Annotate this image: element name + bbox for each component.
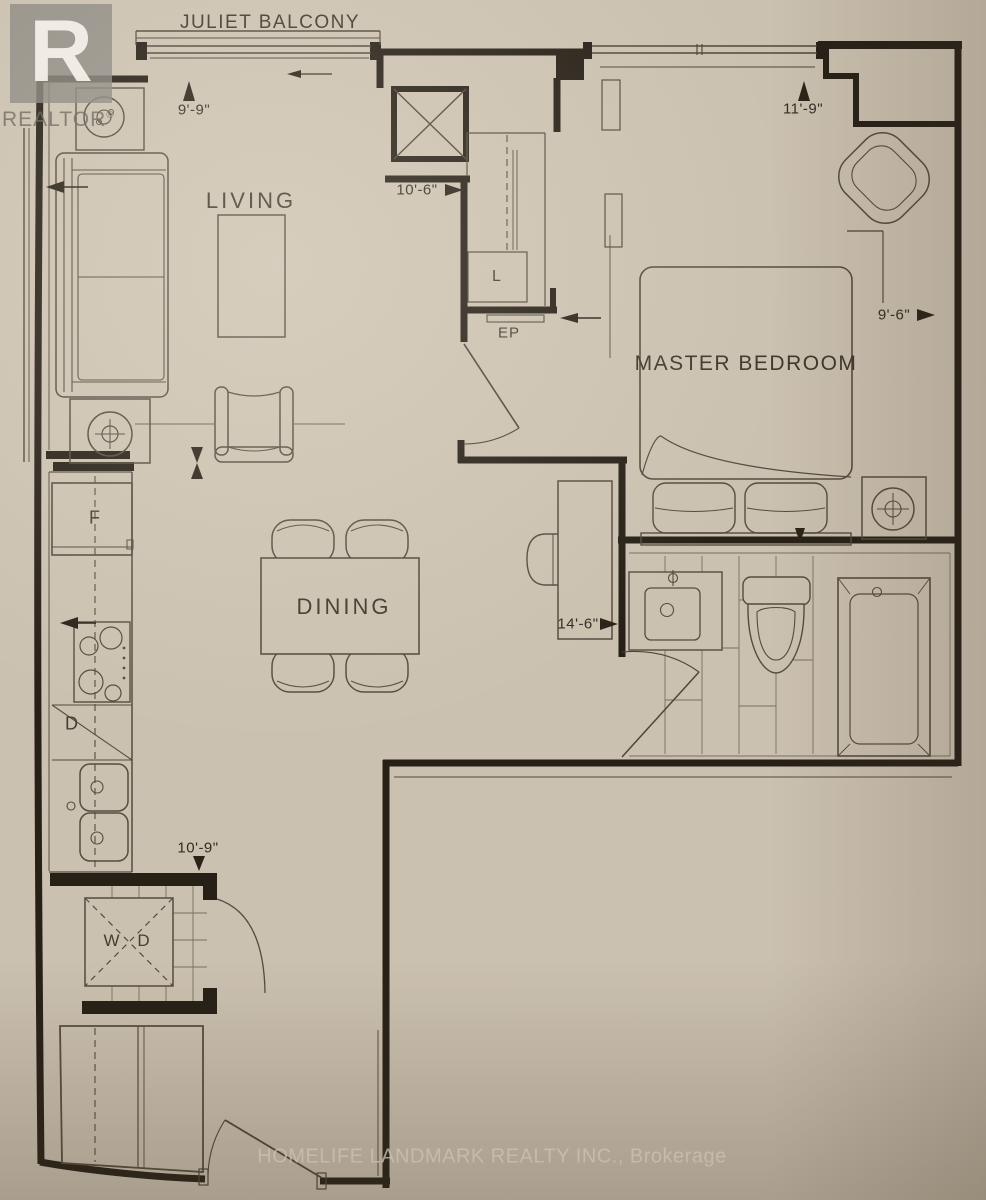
bedroom-door — [464, 344, 519, 444]
washer-dryer — [85, 898, 265, 993]
bathroom-door — [622, 651, 699, 757]
elevator-shaft — [394, 89, 466, 159]
electrical-panel — [487, 315, 544, 322]
kitchen-sink — [67, 764, 128, 861]
foyer-closet — [60, 1026, 203, 1172]
floor-plan-page: JULIET BALCONY LIVING DINING MASTER BEDR… — [0, 0, 986, 1200]
bathtub — [838, 578, 930, 756]
toilet — [743, 577, 810, 673]
dishwasher — [52, 705, 132, 760]
sofa — [56, 153, 168, 397]
desk-chair — [527, 534, 560, 585]
kitchen-counter — [49, 472, 132, 872]
side-table-top — [76, 88, 144, 150]
armchair — [214, 384, 294, 462]
bed — [640, 267, 852, 545]
dining-table — [261, 558, 419, 654]
cooktop — [74, 622, 130, 702]
walls — [37, 42, 962, 1188]
fridge — [52, 483, 133, 555]
laundry-door-arc — [217, 899, 265, 993]
desk — [558, 481, 612, 639]
coffee-table — [218, 215, 285, 337]
bathroom-vanity — [629, 570, 722, 650]
entry-door — [199, 1120, 326, 1189]
floor-plan-drawing — [0, 0, 986, 1200]
corner-chair — [829, 123, 939, 233]
linen-closet — [467, 133, 545, 306]
bedroom-shelves — [602, 80, 622, 358]
nightstand — [862, 477, 926, 539]
